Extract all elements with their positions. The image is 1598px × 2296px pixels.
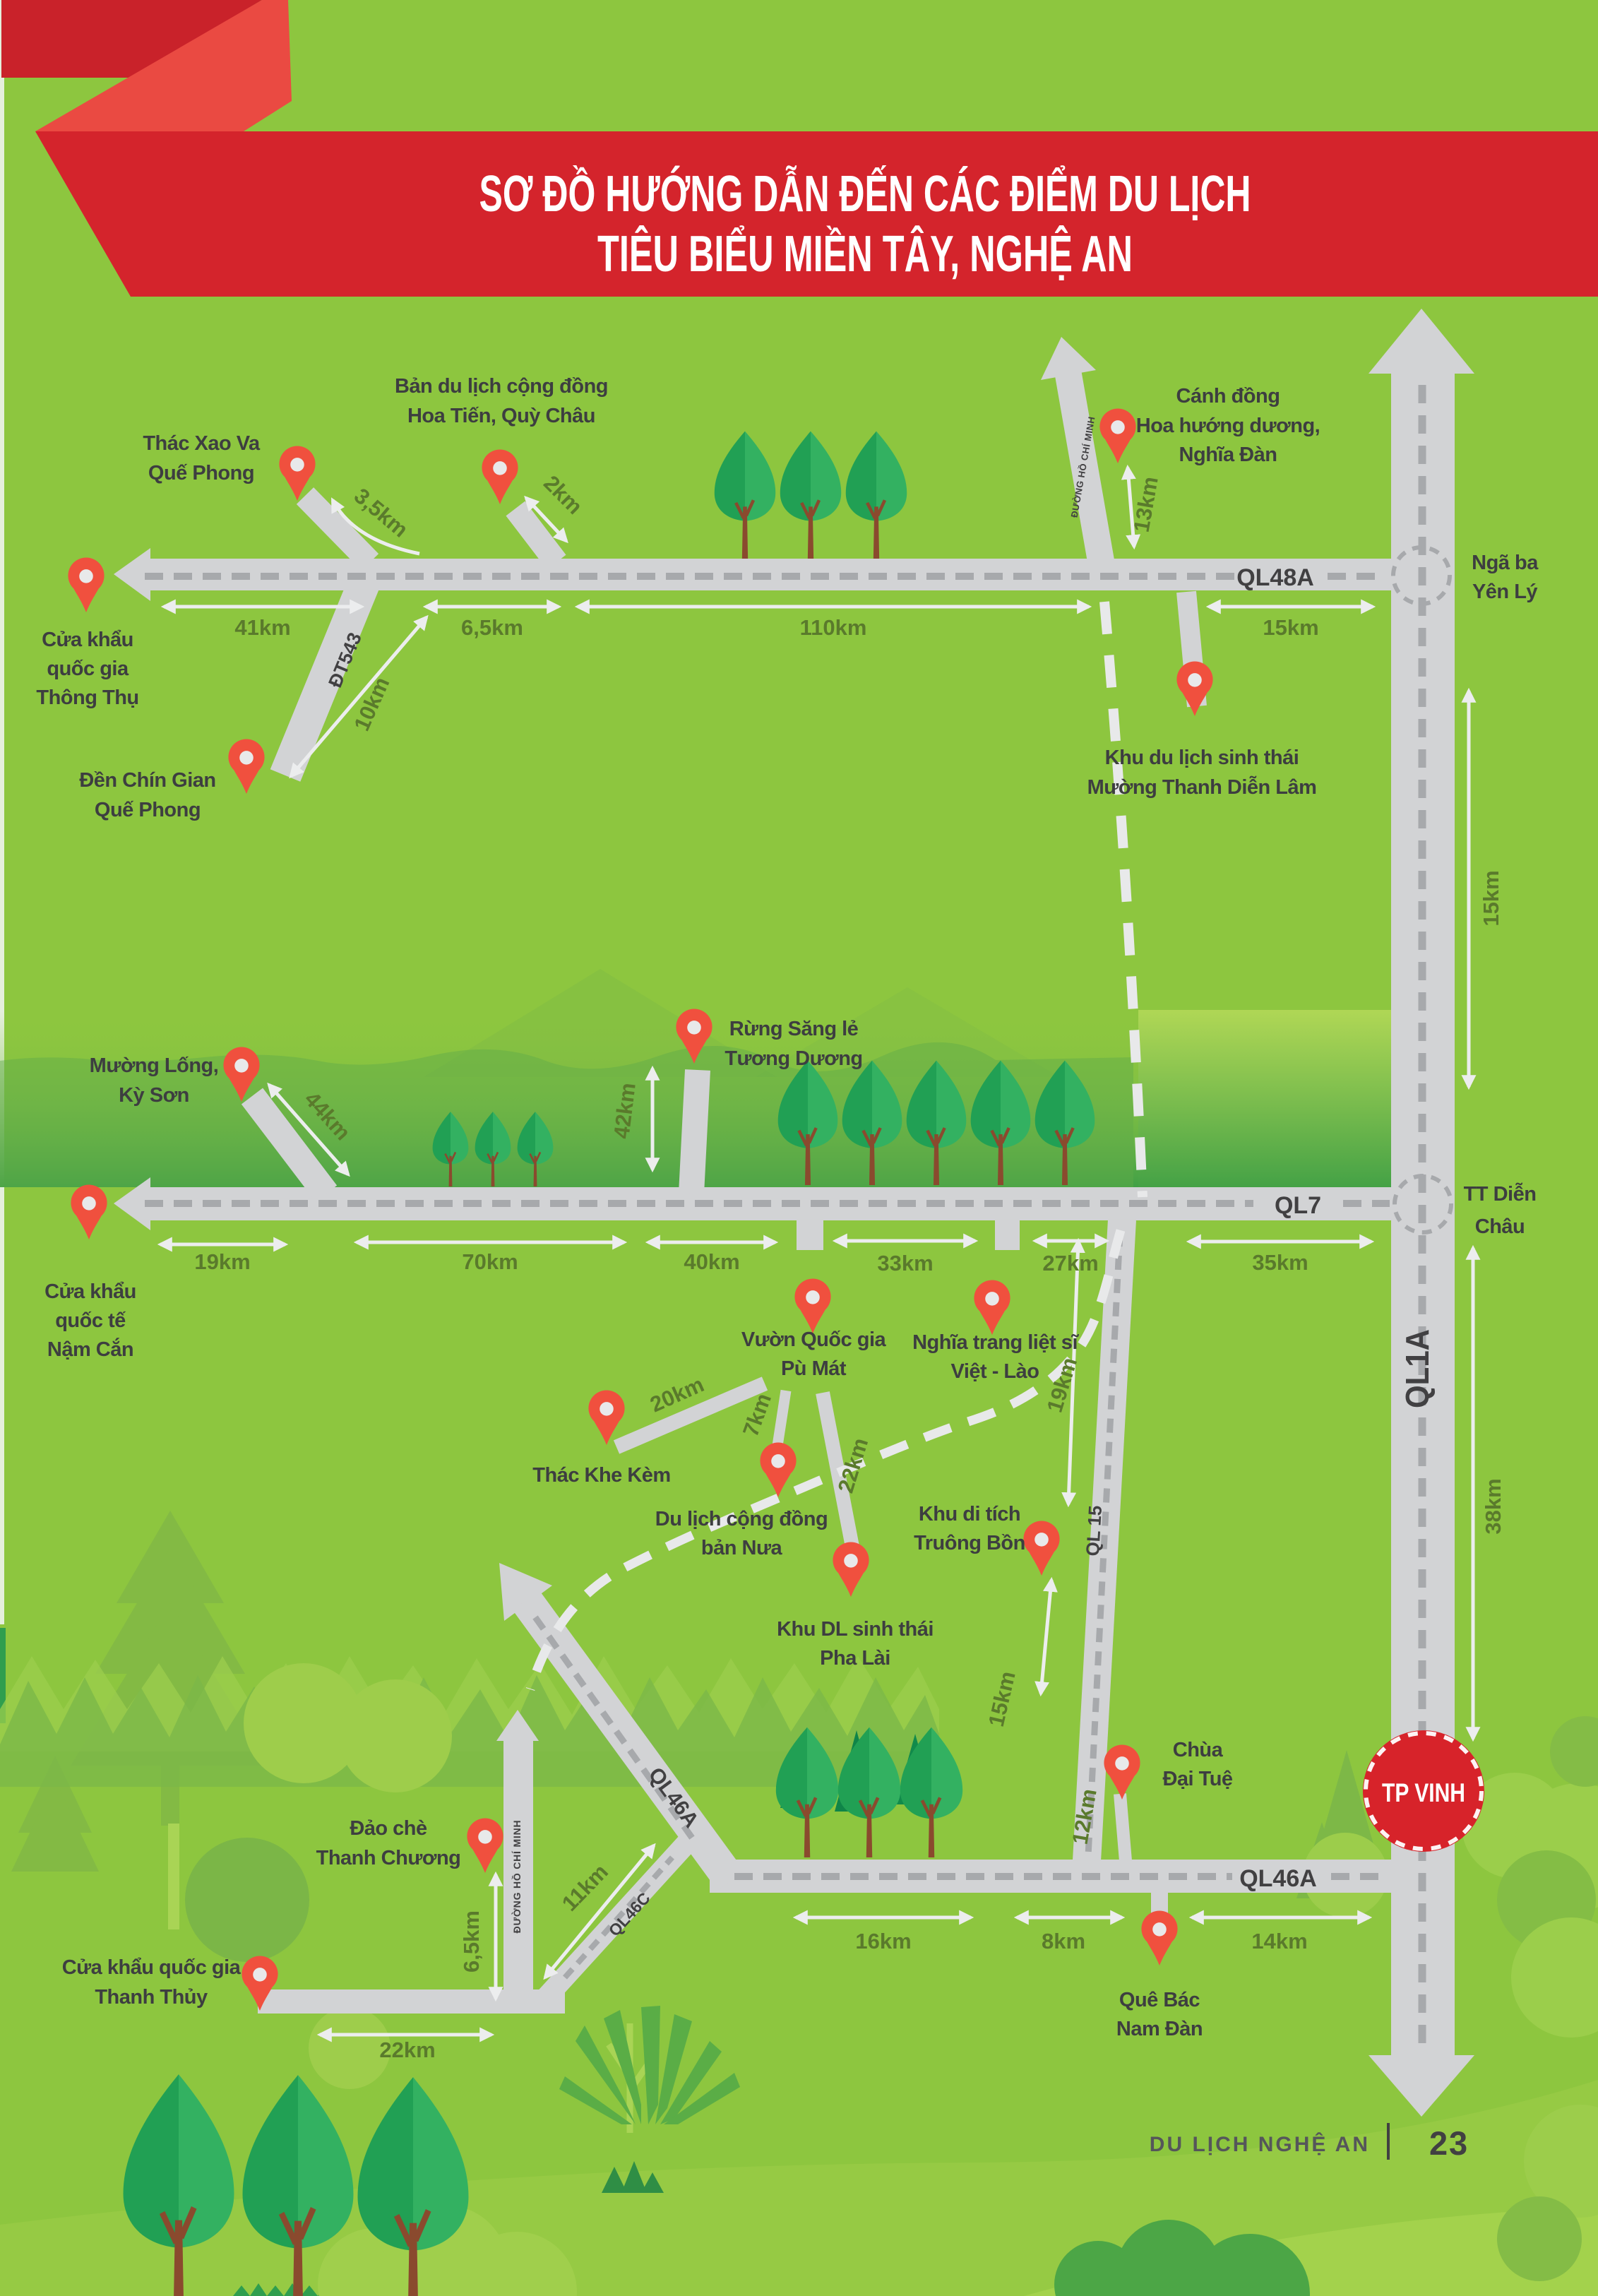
svg-text:TIÊU BIỂU MIỀN TÂY, NGHỆ AN: TIÊU BIỂU MIỀN TÂY, NGHỆ AN [597,225,1133,282]
svg-text:Quế Phong: Quế Phong [148,462,254,484]
svg-text:15km: 15km [1479,870,1503,926]
svg-text:Tương Dương: Tương Dương [725,1047,862,1070]
svg-text:8km: 8km [1042,1929,1085,1953]
svg-text:Thanh Chương: Thanh Chương [316,1847,461,1869]
svg-text:Mường Lống,: Mường Lống, [90,1054,219,1077]
svg-text:Vườn Quốc gia: Vườn Quốc gia [741,1328,887,1351]
svg-text:Hoa Tiến, Quỳ Châu: Hoa Tiến, Quỳ Châu [407,405,595,427]
svg-text:Cửa khẩu: Cửa khẩu [42,629,133,651]
svg-text:16km: 16km [855,1929,911,1953]
svg-text:15km: 15km [1263,615,1318,640]
svg-text:19km: 19km [194,1249,250,1274]
svg-text:bản Nưa: bản Nưa [701,1537,783,1559]
svg-text:6,5km: 6,5km [459,1910,484,1973]
svg-text:Pha Lài: Pha Lài [820,1647,890,1670]
svg-text:38km: 38km [1481,1478,1505,1534]
svg-text:Bản du lịch cộng đồng: Bản du lịch cộng đồng [395,375,608,398]
svg-text:DU LỊCH NGHỆ AN: DU LỊCH NGHỆ AN [1150,2132,1370,2156]
svg-text:14km: 14km [1251,1929,1307,1953]
svg-text:Ngã ba: Ngã ba [1472,552,1539,574]
svg-text:33km: 33km [877,1251,933,1275]
svg-text:Rừng Săng lẻ: Rừng Săng lẻ [729,1018,859,1040]
svg-text:Nghĩa trang liệt sĩ: Nghĩa trang liệt sĩ [912,1331,1079,1354]
svg-text:Thác Khe Kèm: Thác Khe Kèm [532,1464,670,1487]
svg-text:Mường Thanh Diễn Lâm: Mường Thanh Diễn Lâm [1087,775,1317,799]
svg-text:6,5km: 6,5km [461,615,523,640]
svg-text:Châu: Châu [1475,1215,1525,1238]
svg-text:QL 15: QL 15 [1082,1505,1106,1557]
svg-text:QL1A: QL1A [1399,1329,1436,1408]
svg-text:Nậm Cắn: Nậm Cắn [47,1337,133,1361]
svg-text:40km: 40km [684,1249,739,1274]
svg-text:quốc gia: quốc gia [47,658,129,680]
svg-text:ĐƯỜNG HỒ CHÍ MINH: ĐƯỜNG HỒ CHÍ MINH [511,1820,523,1934]
svg-text:Việt - Lào: Việt - Lào [951,1360,1039,1383]
svg-text:TP VINH: TP VINH [1382,1778,1465,1807]
svg-text:QL48A: QL48A [1236,564,1314,591]
svg-text:Khu DL sinh thái: Khu DL sinh thái [777,1618,934,1641]
svg-text:22km: 22km [379,2038,435,2062]
svg-text:Thông Thụ: Thông Thụ [36,686,138,709]
svg-text:TT Diễn: TT Diễn [1464,1182,1537,1206]
svg-text:Quê Bác: Quê Bác [1119,1989,1200,2011]
svg-text:Quế Phong: Quế Phong [95,799,201,821]
svg-text:SƠ ĐỒ HƯỚNG DẪN ĐẾN CÁC ĐIỂM D: SƠ ĐỒ HƯỚNG DẪN ĐẾN CÁC ĐIỂM DU LỊCH [479,165,1251,222]
svg-text:70km: 70km [462,1249,518,1274]
svg-text:Chùa: Chùa [1173,1739,1224,1761]
svg-text:Pù Mát: Pù Mát [781,1357,847,1380]
svg-text:Khu di tích: Khu di tích [919,1503,1020,1525]
svg-text:quốc tế: quốc tế [55,1309,126,1332]
svg-text:3: 3 [1449,2124,1467,2162]
svg-text:QL7: QL7 [1275,1192,1321,1219]
svg-text:27km: 27km [1042,1251,1098,1275]
svg-text:Truông Bồn: Truông Bồn [914,1532,1025,1554]
svg-text:Cửa khẩu quốc gia: Cửa khẩu quốc gia [62,1956,242,1979]
svg-text:Nghĩa Đàn: Nghĩa Đàn [1179,444,1277,466]
svg-text:41km: 41km [234,615,290,640]
svg-text:Khu du lịch sinh thái: Khu du lịch sinh thái [1105,747,1299,769]
svg-text:Thác Xao Va: Thác Xao Va [143,432,261,455]
svg-text:Đại Tuệ: Đại Tuệ [1162,1768,1232,1790]
svg-text:Cửa khẩu: Cửa khẩu [44,1280,136,1303]
svg-text:QL46A: QL46A [1239,1865,1317,1892]
svg-text:Yên Lý: Yên Lý [1472,581,1537,603]
svg-text:Du lịch cộng đồng: Du lịch cộng đồng [655,1508,828,1530]
svg-text:2: 2 [1429,2124,1448,2162]
svg-text:Kỳ Sơn: Kỳ Sơn [119,1084,189,1107]
svg-text:110km: 110km [800,615,867,640]
svg-text:Thanh Thủy: Thanh Thủy [95,1986,208,2009]
svg-text:35km: 35km [1252,1250,1308,1275]
svg-text:Nam Đàn: Nam Đàn [1116,2018,1203,2040]
svg-text:Cánh đồng: Cánh đồng [1176,385,1280,408]
svg-text:Hoa hướng dương,: Hoa hướng dương, [1136,415,1320,437]
svg-text:Đền Chín Gian: Đền Chín Gian [79,769,215,792]
svg-text:Đảo chè: Đảo chè [350,1817,427,1840]
